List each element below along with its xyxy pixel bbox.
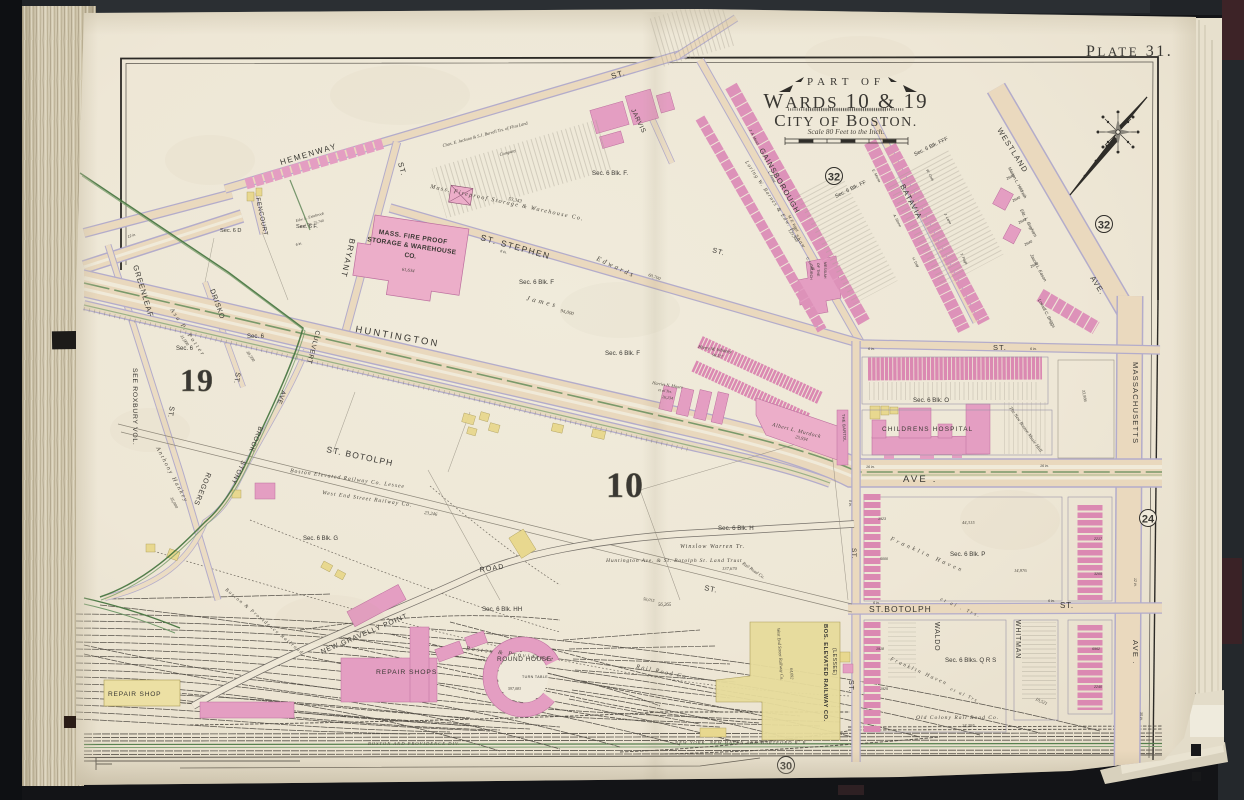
svg-text:Sec. 6: Sec. 6 [247, 334, 265, 340]
svg-text:6 in.: 6 in. [868, 347, 875, 351]
svg-text:MASSACHUSETTS: MASSACHUSETTS [1131, 362, 1140, 444]
svg-text:24: 24 [1142, 514, 1155, 526]
svg-text:2217: 2217 [1093, 537, 1103, 541]
svg-text:Sec. 6 Blk. O: Sec. 6 Blk. O [913, 397, 949, 404]
svg-text:6 in.: 6 in. [1048, 599, 1055, 603]
svg-text:10: 10 [606, 465, 644, 505]
svg-text:Sec. 6 Blk. F: Sec. 6 Blk. F [605, 350, 640, 357]
svg-text:TURN TABLE: TURN TABLE [522, 675, 548, 679]
svg-text:8 in.: 8 in. [848, 500, 852, 507]
svg-text:WALDO: WALDO [933, 622, 940, 651]
svg-text:12 in.: 12 in. [1133, 578, 1137, 587]
svg-text:Old Colony Rail Road Co.: Old Colony Rail Road Co. [916, 715, 999, 721]
svg-text:REPAIR SHOPS: REPAIR SHOPS [376, 669, 437, 676]
svg-text:5000: 5000 [880, 557, 888, 561]
svg-text:30 in.: 30 in. [1139, 712, 1143, 721]
svg-text:(LESSEE): (LESSEE) [831, 648, 837, 676]
svg-text:Sec. 6 D: Sec. 6 D [220, 228, 241, 234]
svg-text:AVE .: AVE . [903, 474, 938, 485]
svg-text:REPAIR SHOP: REPAIR SHOP [108, 691, 161, 698]
svg-text:6962: 6962 [1092, 647, 1100, 651]
svg-text:ST.: ST. [850, 548, 857, 559]
svg-text:6 in.: 6 in. [1030, 347, 1037, 351]
svg-text:BOS. ELEVATED RAILWAY CO.: BOS. ELEVATED RAILWAY CO. [822, 624, 828, 722]
svg-text:ST.: ST. [993, 343, 1007, 352]
svg-text:PLATE 31.: PLATE 31. [1086, 43, 1173, 60]
svg-text:Sec. 6 Blk. G: Sec. 6 Blk. G [303, 536, 338, 542]
svg-text:19: 19 [180, 362, 214, 398]
svg-text:Sec. 6 Blk. HH: Sec. 6 Blk. HH [482, 606, 522, 613]
svg-text:32: 32 [1098, 220, 1110, 232]
svg-text:ST.: ST. [1060, 601, 1074, 610]
svg-text:Sec. 6 Blk. F: Sec. 6 Blk. F [519, 279, 554, 286]
svg-text:Sec. 6 Blks. Q R S: Sec. 6 Blks. Q R S [945, 657, 996, 664]
svg-text:ST.: ST. [847, 680, 854, 693]
svg-text:32: 32 [828, 172, 840, 184]
svg-text:OF THE: OF THE [816, 263, 820, 277]
svg-text:1918: 1918 [876, 647, 884, 651]
svg-text:Sec. 6 Blk. F.: Sec. 6 Blk. F. [592, 170, 628, 177]
svg-text:1925: 1925 [880, 687, 888, 691]
svg-text:Sec. 6 Blk. P: Sec. 6 Blk. P [950, 551, 985, 558]
svg-text:6 in.: 6 in. [873, 601, 880, 605]
svg-text:Huntington Ave. & St. Boto: Huntington Ave. & St. Botolph St. Land T… [605, 558, 742, 564]
svg-text:MESSIAH: MESSIAH [823, 262, 827, 279]
svg-text:Sec. 6 Blk. H: Sec. 6 Blk. H [718, 525, 754, 532]
svg-text:Scale 80 Feet to the Inch.: Scale 80 Feet to the Inch. [808, 127, 885, 136]
svg-text:1923: 1923 [878, 517, 886, 521]
svg-text:3205: 3205 [1094, 572, 1102, 576]
svg-text:Winslow Warren Tr.: Winslow Warren Tr. [680, 544, 745, 550]
svg-text:16 in.: 16 in. [866, 465, 875, 469]
svg-text:2240: 2240 [1093, 685, 1102, 689]
svg-text:AVE .: AVE . [1131, 640, 1140, 665]
svg-text:ST.BOTOLPH: ST.BOTOLPH [869, 604, 932, 614]
svg-text:WHITMAN: WHITMAN [1014, 620, 1021, 659]
svg-text:CHILDRENS HOSPITAL: CHILDRENS HOSPITAL [882, 426, 973, 433]
svg-text:16 in.: 16 in. [1040, 464, 1049, 468]
svg-text:BOSTON AND PROVIDENCE: BOSTON AND PROVIDENCE DIV. [368, 741, 460, 746]
svg-text:Sec. 6: Sec. 6 [176, 346, 194, 352]
